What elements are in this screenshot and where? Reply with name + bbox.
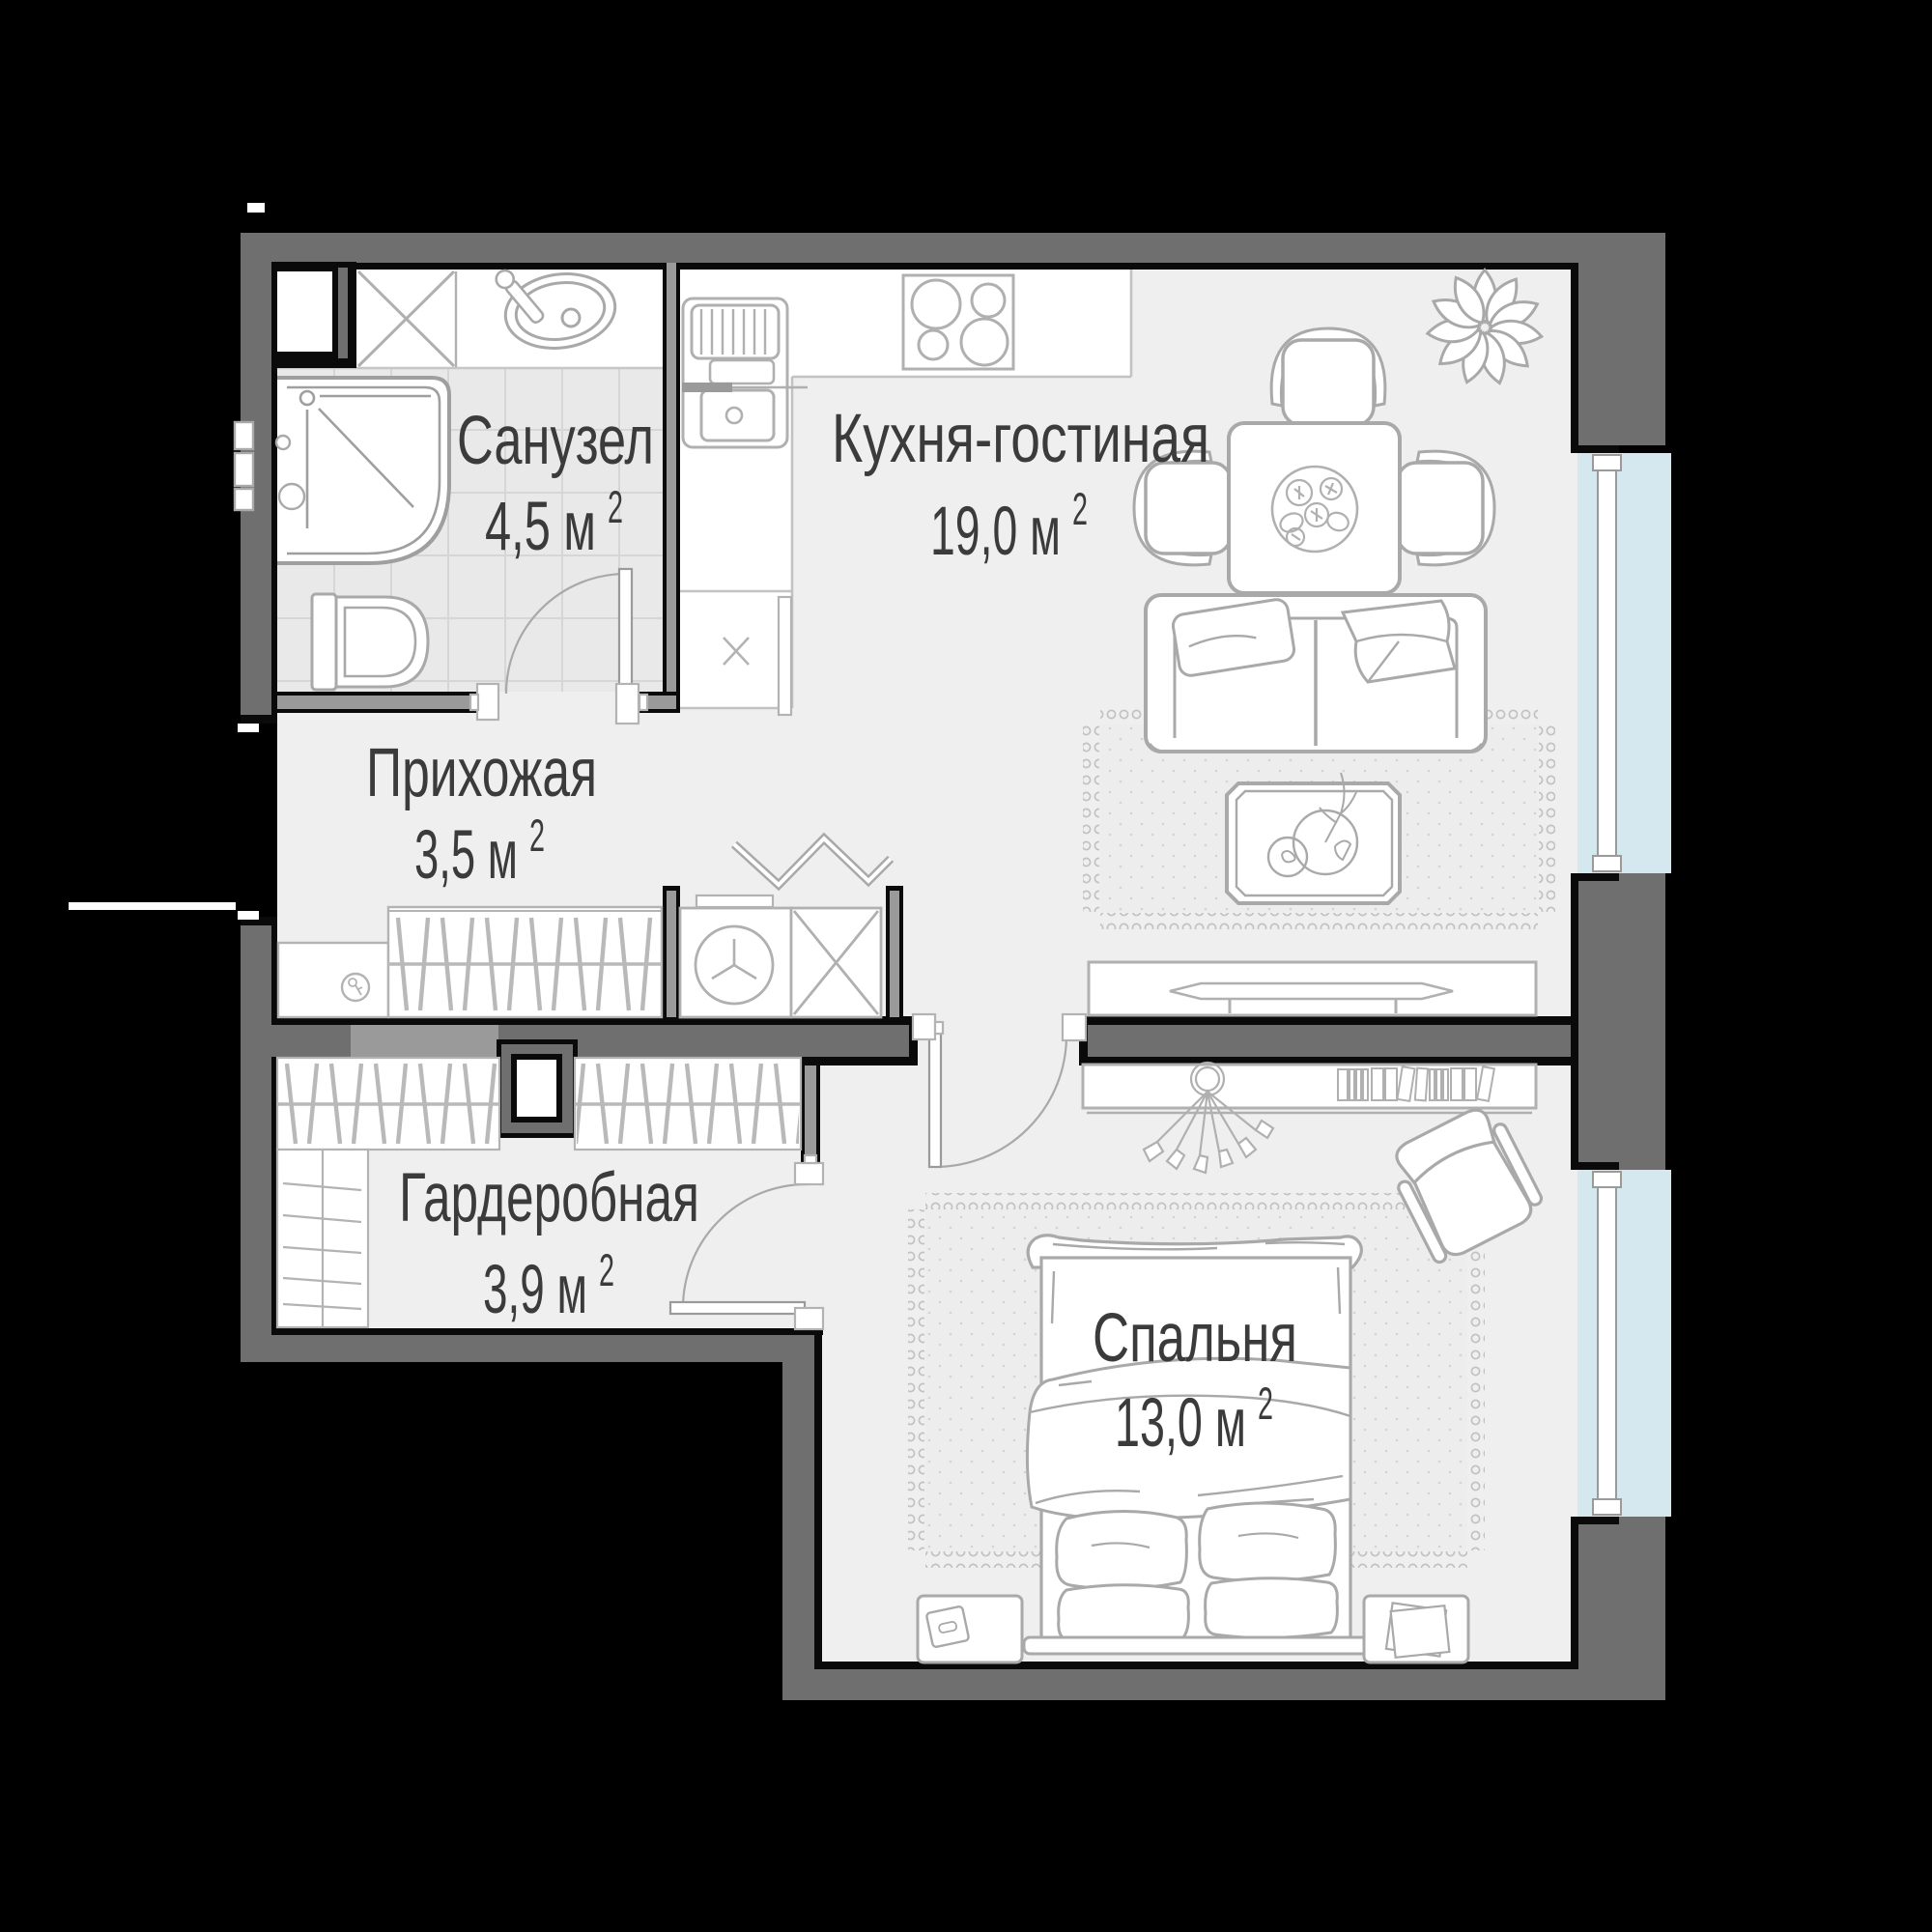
svg-text:Спальня: Спальня: [1093, 1300, 1297, 1377]
svg-text:2: 2: [1072, 483, 1088, 534]
svg-text:2: 2: [1258, 1378, 1273, 1429]
svg-text:Гардеробная: Гардеробная: [399, 1160, 699, 1236]
svg-text:Санузел: Санузел: [457, 403, 654, 479]
svg-text:2: 2: [529, 810, 545, 861]
svg-text:Кухня-гостиная: Кухня-гостиная: [832, 401, 1209, 477]
svg-text:2: 2: [608, 481, 623, 532]
svg-text:Прихожая: Прихожая: [366, 735, 597, 811]
svg-text:19,0 м: 19,0 м: [930, 494, 1061, 570]
svg-text:3,9 м: 3,9 м: [483, 1252, 587, 1328]
svg-text:3,5 м: 3,5 м: [414, 817, 518, 894]
svg-text:4,5 м: 4,5 м: [485, 489, 596, 565]
svg-text:2: 2: [599, 1244, 614, 1295]
svg-text:13,0 м: 13,0 м: [1115, 1385, 1246, 1462]
